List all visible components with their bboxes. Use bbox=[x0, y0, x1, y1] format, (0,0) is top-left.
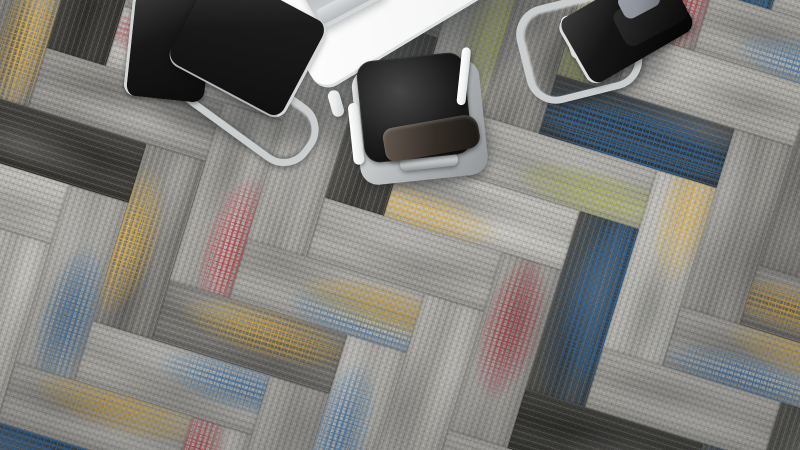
cantilever-chair-middle bbox=[345, 49, 496, 199]
office-floor-photo bbox=[0, 0, 800, 450]
